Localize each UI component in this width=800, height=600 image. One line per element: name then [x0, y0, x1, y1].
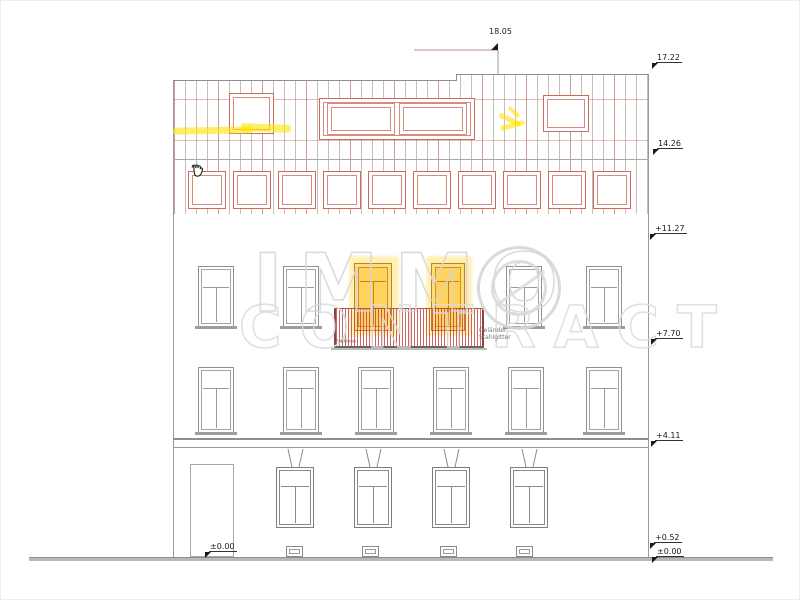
level-arrow-icon — [650, 234, 656, 240]
level-marker: 17.22 — [656, 53, 682, 69]
hand-cursor-icon — [187, 158, 209, 180]
ground-level-marker: ±0.00 — [209, 542, 237, 558]
level-marker: +4.11 — [655, 431, 683, 447]
railing-annotation: Geländer Stahlgitter — [479, 327, 511, 341]
level-arrow-icon — [652, 557, 658, 563]
yellow-highlight — [241, 123, 291, 133]
level-marker: +7.70 — [655, 329, 683, 345]
level-arrow-icon — [653, 149, 659, 155]
top-dimension-label: 18.05 — [489, 27, 512, 36]
door-annotation: Falttüren — [336, 339, 356, 344]
dimension-arrow-icon — [491, 43, 498, 50]
level-marker: 14.26 — [657, 139, 683, 155]
level-marker: +11.27 — [654, 224, 687, 240]
level-arrow-icon — [651, 339, 657, 345]
level-arrow-icon — [652, 63, 658, 69]
level-marker: ±0.00 — [656, 547, 684, 563]
level-arrow-icon — [205, 552, 211, 558]
level-arrow-icon — [651, 441, 657, 447]
elevation-drawing-page: IMMO CONTRACT 18.05 17.22 14.26 +11.27 +… — [0, 0, 800, 600]
